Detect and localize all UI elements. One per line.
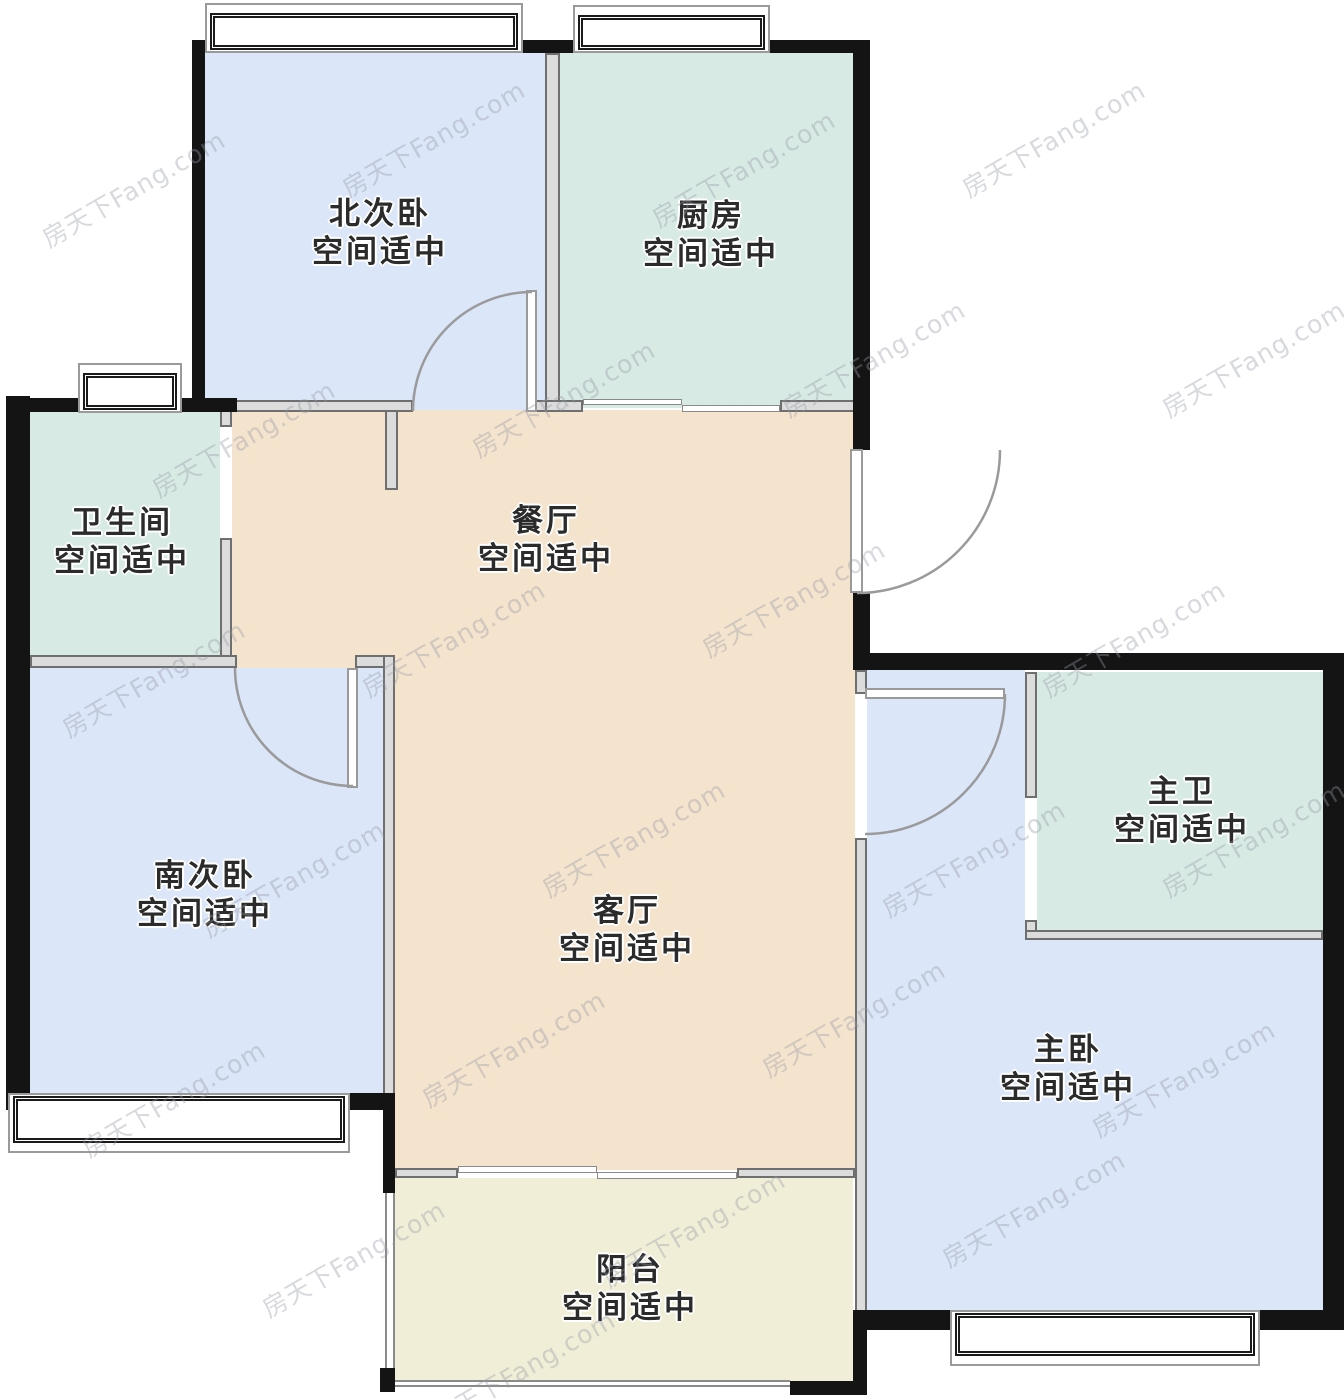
room-status: 空间适中 [562, 1289, 698, 1327]
room-name: 南次卧 [137, 857, 273, 895]
wall-living-master-lower [855, 838, 867, 1312]
wall-south-bedroom-top-right [355, 655, 385, 668]
door-leaf-south-bedroom [347, 668, 358, 788]
wall-north-bedroom-left [192, 40, 205, 412]
wall-bedroom-kitchen [545, 53, 560, 412]
wall-south-bedroom-top-left [30, 655, 237, 668]
wall-balcony-bottom-right [790, 1381, 867, 1395]
balcony-sliding-door-left [458, 1166, 597, 1173]
label-balcony: 阳台 空间适中 [562, 1251, 698, 1327]
label-master-bath: 主卫 空间适中 [1114, 773, 1250, 849]
room-status: 空间适中 [312, 233, 448, 271]
watermark-text: 房天下Fang.com [955, 71, 1152, 205]
wall-right-outer [1323, 653, 1344, 1330]
door-leaf-master-bedroom [865, 688, 1005, 699]
room-name: 卫生间 [54, 504, 190, 542]
wall-balcony-top-right [737, 1168, 855, 1178]
label-kitchen: 厨房 空间适中 [643, 197, 779, 273]
wall-kitchen-right [853, 40, 870, 450]
room-name: 厨房 [643, 197, 779, 235]
wall-south-bedroom-right [383, 655, 395, 1095]
label-living: 客厅 空间适中 [559, 892, 695, 968]
label-bathroom: 卫生间 空间适中 [54, 504, 190, 580]
room-status: 空间适中 [54, 542, 190, 580]
window-kitchen [573, 5, 770, 53]
room-name: 阳台 [562, 1251, 698, 1289]
label-dining: 餐厅 空间适中 [478, 502, 614, 578]
kitchen-sliding-door-left [583, 399, 682, 405]
door-leaf-north-bedroom [526, 290, 537, 412]
wall-kitchen-bottom-left [545, 400, 583, 412]
room-status: 空间适中 [1000, 1069, 1136, 1107]
room-name: 餐厅 [478, 502, 614, 540]
label-south-bedroom: 南次卧 空间适中 [137, 857, 273, 933]
door-leaf-entry [850, 449, 863, 593]
label-master-bedroom: 主卧 空间适中 [1000, 1031, 1136, 1107]
wall-south-right-lower [383, 1093, 395, 1193]
room-status: 空间适中 [559, 930, 695, 968]
wall-master-bath-bottom [1025, 930, 1323, 940]
floor-plan: 北次卧 空间适中 厨房 空间适中 卫生间 空间适中 餐厅 空间适中 南次卧 空间… [0, 0, 1344, 1400]
kitchen-sliding-door-right [682, 405, 780, 412]
room-name: 主卫 [1114, 773, 1250, 811]
door-arc-entry [857, 450, 1000, 593]
window-master-bedroom [950, 1310, 1260, 1366]
room-fill-master-bedroom [867, 938, 1323, 1312]
room-status: 空间适中 [478, 540, 614, 578]
balcony-sliding-door-right [597, 1172, 737, 1179]
room-name: 北次卧 [312, 195, 448, 233]
wall-master-bath-left-upper [1025, 672, 1037, 798]
wall-left-outer [6, 396, 30, 1108]
balcony-left-glass [385, 1193, 395, 1370]
room-status: 空间适中 [137, 895, 273, 933]
label-north-bedroom: 北次卧 空间适中 [312, 195, 448, 271]
balcony-bottom-glass [395, 1380, 790, 1387]
window-south-bedroom [8, 1093, 350, 1153]
wall-mid-horizontal [853, 653, 1344, 670]
room-status: 空间适中 [1114, 811, 1250, 849]
wall-bathroom-right-lower [220, 538, 232, 657]
window-bathroom [78, 363, 182, 413]
wall-dining-stub [385, 410, 398, 490]
room-name: 主卧 [1000, 1031, 1136, 1069]
room-name: 客厅 [559, 892, 695, 930]
watermark-text: 房天下Fang.com [1155, 291, 1344, 425]
room-status: 空间适中 [643, 235, 779, 273]
wall-kitchen-bottom-right [780, 400, 855, 412]
window-north-bedroom [205, 3, 523, 53]
wall-balcony-top-left [395, 1168, 458, 1178]
wall-balcony-bottom-left-stub [380, 1368, 395, 1392]
